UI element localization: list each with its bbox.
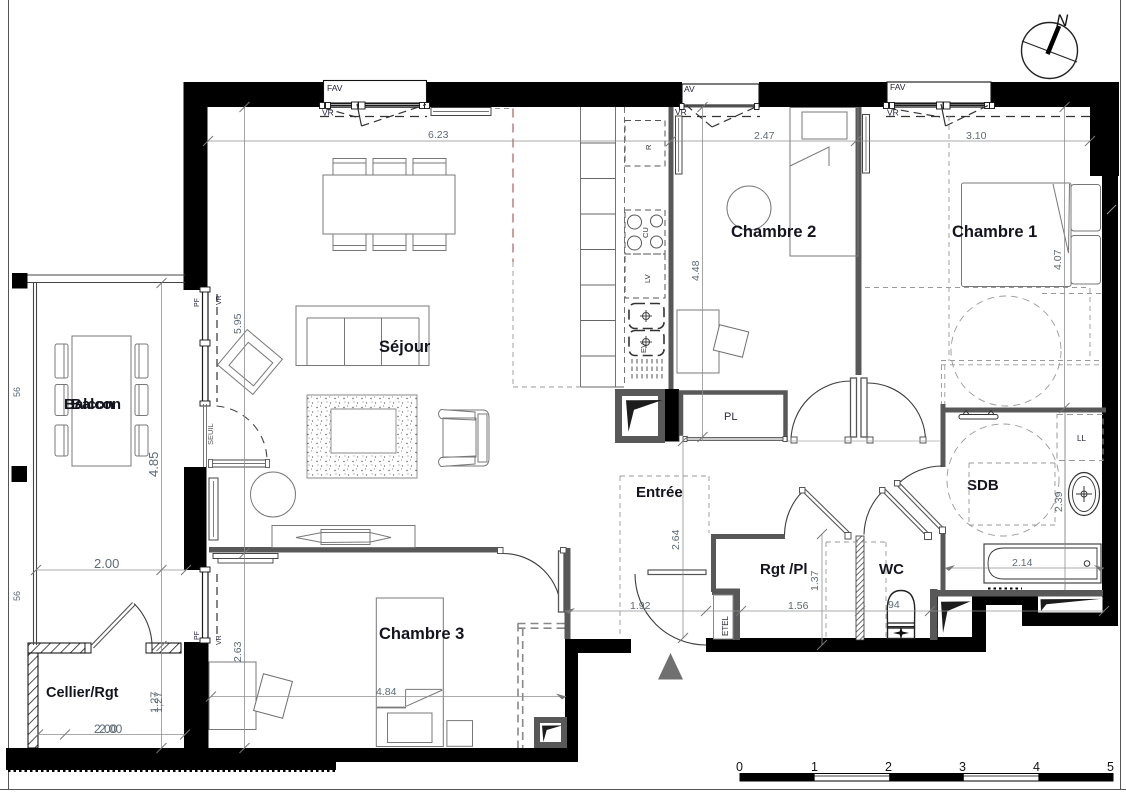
svg-text:PL: PL	[724, 411, 737, 423]
svg-text:2.63: 2.63	[232, 641, 244, 662]
svg-text:Séjour: Séjour	[379, 338, 431, 356]
svg-text:4.07: 4.07	[1052, 249, 1064, 270]
svg-text:WC: WC	[879, 561, 904, 578]
svg-text:Rgt /Pl: Rgt /Pl	[760, 561, 808, 578]
svg-text:Cellier/Rgt: Cellier/Rgt	[46, 685, 119, 701]
svg-text:1.56: 1.56	[788, 600, 809, 612]
svg-text:4: 4	[1033, 760, 1040, 774]
svg-text:3: 3	[959, 760, 966, 774]
svg-text:Chambre 1: Chambre 1	[952, 223, 1037, 241]
svg-text:PF: PF	[194, 298, 201, 307]
svg-text:FAV: FAV	[890, 82, 906, 92]
svg-text:VR: VR	[216, 635, 223, 645]
svg-text:94: 94	[888, 599, 900, 611]
svg-text:EV: EV	[639, 343, 648, 353]
svg-text:FAV: FAV	[327, 83, 343, 93]
svg-text:Balcon: Balcon	[71, 396, 121, 413]
svg-text:2.00: 2.00	[99, 722, 123, 736]
svg-text:5: 5	[1107, 760, 1114, 774]
svg-text:Chambre 3: Chambre 3	[379, 625, 464, 643]
svg-text:1,27: 1,27	[153, 692, 165, 713]
svg-text:56: 56	[12, 591, 22, 601]
svg-text:0: 0	[736, 760, 743, 774]
svg-text:1: 1	[811, 760, 818, 774]
svg-text:LV: LV	[643, 274, 652, 283]
svg-text:Chambre 2: Chambre 2	[731, 223, 816, 241]
svg-text:4.85: 4.85	[146, 452, 161, 477]
svg-text:CU: CU	[641, 227, 650, 238]
svg-text:2.00: 2.00	[94, 556, 119, 571]
svg-text:2.14: 2.14	[1012, 557, 1033, 569]
svg-text:3.10: 3.10	[966, 130, 987, 142]
svg-text:SEUIL: SEUIL	[206, 423, 215, 445]
svg-text:LL: LL	[1077, 434, 1086, 443]
svg-text:AV: AV	[684, 84, 695, 94]
svg-text:56: 56	[12, 387, 22, 397]
svg-text:N: N	[1056, 11, 1069, 30]
svg-text:2: 2	[885, 760, 892, 774]
svg-text:R: R	[644, 144, 653, 150]
svg-text:1.37: 1.37	[809, 570, 821, 591]
svg-text:PF: PF	[194, 631, 201, 640]
svg-text:4.84: 4.84	[376, 686, 397, 698]
svg-text:2.47: 2.47	[754, 130, 775, 142]
svg-text:ETEL: ETEL	[721, 615, 730, 636]
svg-text:Entrée: Entrée	[636, 484, 683, 501]
svg-text:5.95: 5.95	[232, 313, 244, 334]
svg-text:2.64: 2.64	[670, 529, 682, 550]
svg-text:4.48: 4.48	[690, 260, 702, 281]
svg-text:2.39: 2.39	[1053, 491, 1065, 512]
svg-text:SDB: SDB	[967, 477, 999, 494]
svg-text:6.23: 6.23	[428, 129, 449, 141]
svg-text:1.92: 1.92	[630, 600, 651, 612]
